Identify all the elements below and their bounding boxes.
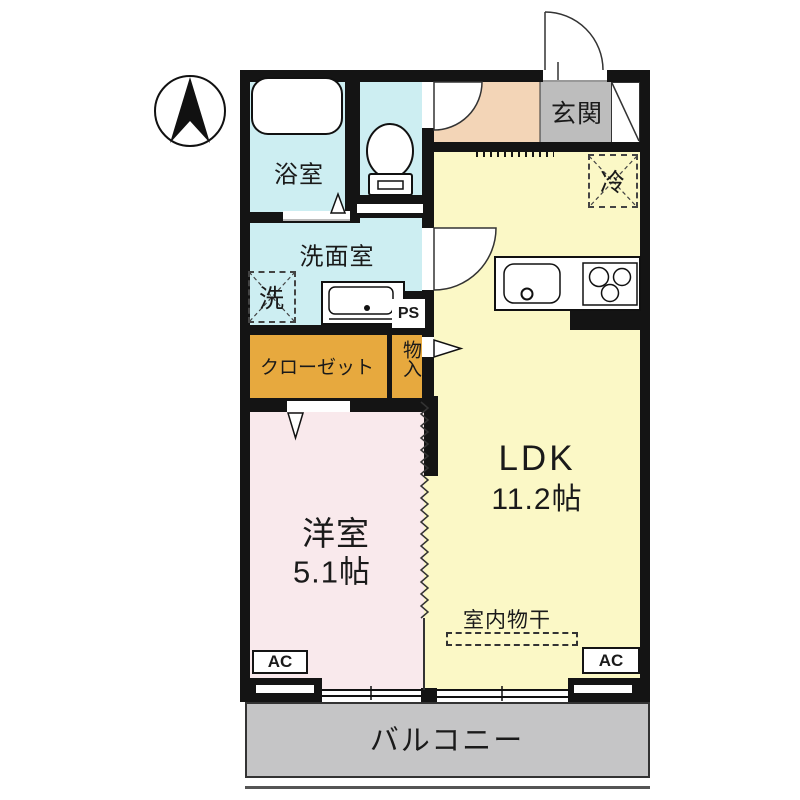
bathroom-floor — [250, 80, 350, 220]
washroom-door-opening — [422, 228, 434, 290]
ac-right-label: AC — [599, 651, 624, 671]
closet-door-opening — [287, 401, 350, 412]
toilet-wall-slit — [357, 204, 423, 213]
wall-closet-divider — [387, 335, 392, 398]
ldk-size-label: 11.2帖 — [491, 474, 582, 518]
fridge-label: 冷 — [600, 163, 626, 199]
entrance-step-hatch — [476, 149, 554, 157]
ac-right-wall-slit — [574, 685, 632, 693]
ldk-name-label: LDK — [498, 439, 575, 479]
wall-partition-stub — [424, 396, 438, 476]
entrance-door-opening — [543, 70, 607, 82]
bathroom-door-opening — [283, 211, 350, 221]
closet-label: クローゼット — [260, 353, 374, 380]
ac-left-label: AC — [268, 652, 293, 672]
washer-label: 洗 — [259, 279, 285, 315]
wall-top-left — [240, 70, 543, 82]
washroom-label: 洗面室 — [300, 237, 375, 272]
pipe-space-label: PS — [398, 305, 419, 323]
pipe-space-box: PS — [392, 299, 425, 328]
wall-left — [240, 70, 250, 702]
entrance-label: 玄関 — [551, 94, 603, 130]
hall-floor — [432, 82, 540, 144]
toilet-door-opening — [422, 82, 434, 128]
balcony-label: バルコニー — [370, 717, 524, 759]
ac-right-box: AC — [582, 647, 640, 674]
shoe-cabinet — [611, 82, 640, 143]
indoor-drying-label: 室内物干 — [463, 604, 551, 634]
ac-left-box: AC — [252, 650, 308, 674]
storage-label: 物入 — [397, 340, 424, 378]
toilet-floor — [358, 80, 424, 198]
ac-left-wall-slit — [256, 685, 314, 693]
western-size-label: 5.1帖 — [293, 547, 371, 592]
wall-under-counter — [570, 310, 640, 330]
bathroom-label: 浴室 — [274, 155, 324, 190]
wall-right — [640, 70, 650, 702]
compass-icon — [155, 76, 225, 146]
indoor-drying-bracket — [446, 632, 578, 646]
floor-plan: PS AC AC 浴室 洗面室 洗 クローゼット 物入 玄関 冷 LDK 11.… — [0, 0, 800, 800]
wall-bottom-center — [421, 688, 437, 702]
balcony-outer-line — [245, 786, 650, 789]
